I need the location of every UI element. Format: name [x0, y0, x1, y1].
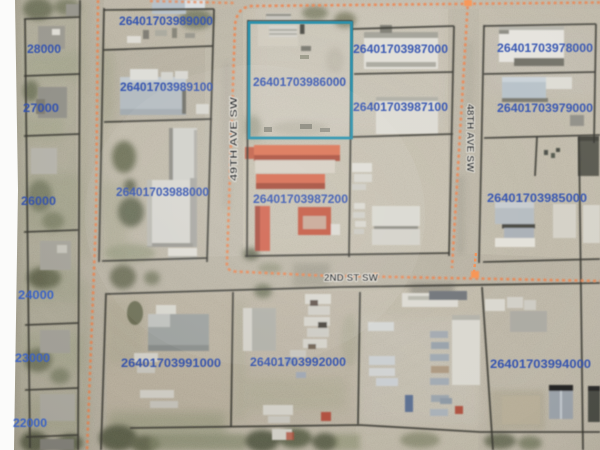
svg-text:22000: 22000 [13, 416, 47, 430]
svg-text:23000: 23000 [15, 351, 50, 365]
svg-text:24000: 24000 [18, 288, 54, 302]
